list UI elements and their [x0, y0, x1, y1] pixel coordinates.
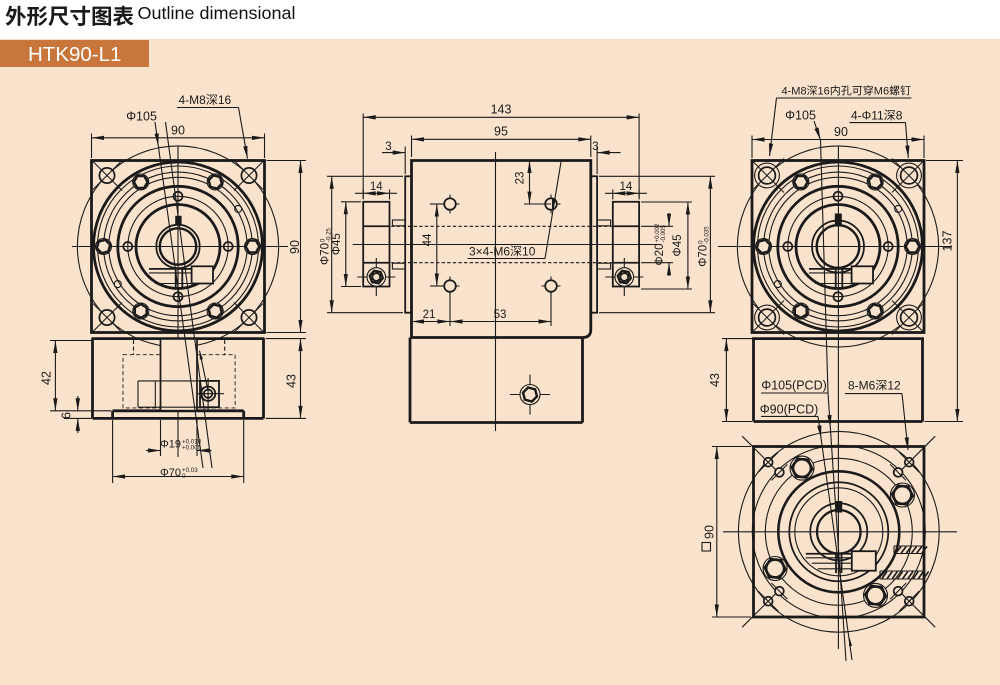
svg-text:M6: M6 — [874, 86, 889, 98]
svg-text:Φ19: Φ19 — [160, 439, 181, 451]
svg-text:8: 8 — [896, 109, 903, 123]
svg-text:3: 3 — [592, 141, 598, 153]
svg-text:14: 14 — [620, 181, 633, 193]
svg-text:14: 14 — [370, 181, 383, 193]
svg-text:-0.005: -0.005 — [660, 224, 667, 242]
svg-text:43: 43 — [285, 374, 299, 388]
svg-text:10: 10 — [522, 245, 536, 259]
svg-text:3×4-M6: 3×4-M6 — [469, 245, 510, 259]
svg-text:Φ90(PCD): Φ90(PCD) — [760, 403, 819, 417]
svg-text:8-M6: 8-M6 — [848, 379, 876, 393]
svg-text:90: 90 — [834, 125, 848, 139]
svg-text:Φ70: Φ70 — [320, 243, 332, 265]
svg-text:HTK90-L1: HTK90-L1 — [28, 43, 121, 66]
svg-text:Φ105: Φ105 — [126, 110, 157, 124]
svg-text:42: 42 — [40, 371, 54, 385]
svg-text:44: 44 — [422, 233, 434, 246]
svg-text:Φ105: Φ105 — [785, 109, 816, 123]
svg-text:Φ105(PCD): Φ105(PCD) — [761, 379, 827, 393]
svg-text:90: 90 — [702, 525, 716, 539]
svg-text:21: 21 — [423, 309, 436, 321]
svg-text:43: 43 — [708, 373, 722, 387]
svg-text:3: 3 — [385, 141, 391, 153]
svg-text:137: 137 — [941, 231, 955, 252]
svg-text:Φ45: Φ45 — [331, 233, 343, 255]
svg-text:6: 6 — [60, 412, 74, 419]
svg-text:16: 16 — [218, 93, 232, 107]
svg-text:0: 0 — [182, 473, 186, 480]
svg-text:143: 143 — [491, 103, 512, 117]
svg-text:4-M8: 4-M8 — [179, 93, 207, 107]
svg-text:12: 12 — [887, 379, 901, 393]
svg-text:-0.25: -0.25 — [326, 227, 333, 242]
svg-text:Outline dimensional: Outline dimensional — [138, 3, 296, 23]
svg-text:16: 16 — [818, 86, 830, 98]
svg-text:Φ70: Φ70 — [160, 467, 181, 479]
svg-text:Φ70: Φ70 — [698, 245, 710, 267]
svg-text:23: 23 — [515, 172, 527, 185]
svg-text:90: 90 — [171, 124, 185, 138]
svg-text:90: 90 — [288, 240, 302, 254]
svg-text:53: 53 — [494, 309, 507, 321]
svg-text:+0.005: +0.005 — [182, 445, 202, 452]
svg-text:Φ45: Φ45 — [672, 235, 684, 257]
svg-text:-0.035: -0.035 — [704, 226, 711, 244]
svg-text:4-M8: 4-M8 — [782, 86, 807, 98]
svg-text:95: 95 — [494, 125, 508, 139]
svg-text:Φ20: Φ20 — [654, 244, 666, 266]
svg-text:4-Φ11: 4-Φ11 — [851, 109, 884, 123]
